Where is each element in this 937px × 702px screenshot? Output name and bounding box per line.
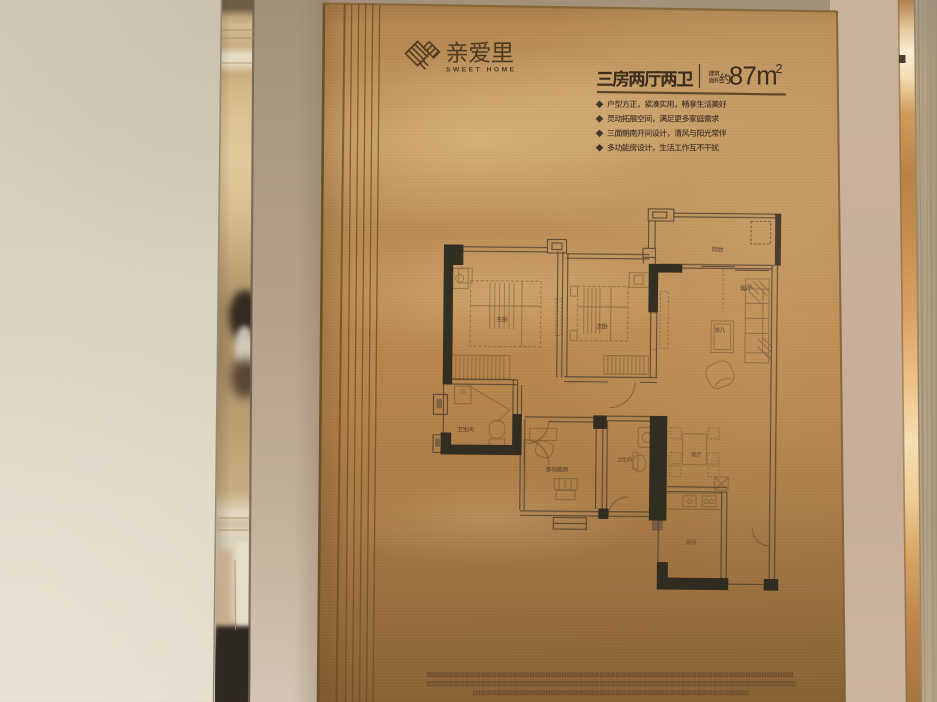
svg-text:2: 2 bbox=[776, 62, 783, 76]
svg-text:SWEET HOME: SWEET HOME bbox=[446, 67, 517, 74]
svg-text:87m: 87m bbox=[729, 63, 777, 91]
